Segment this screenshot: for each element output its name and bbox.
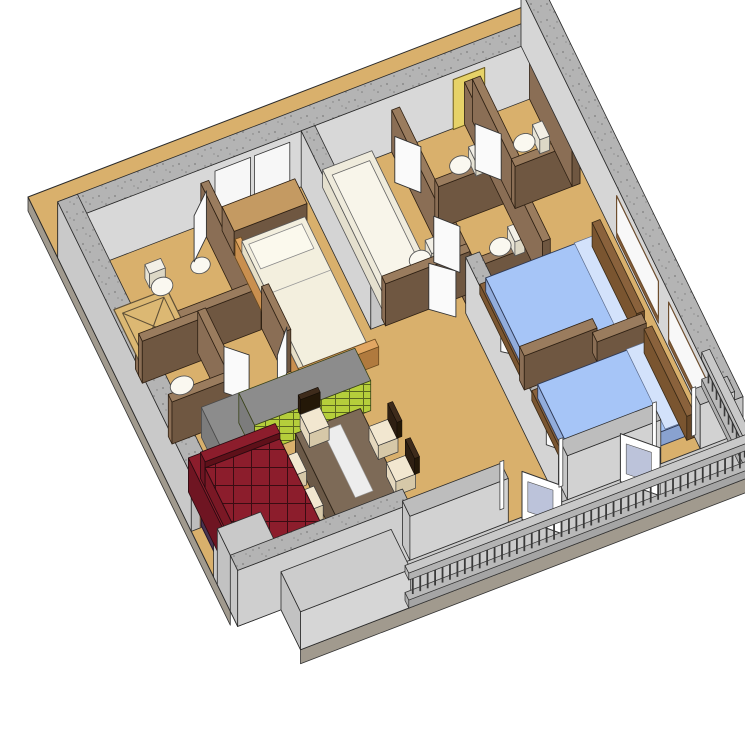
- balcony-doorpost-c: [652, 402, 656, 452]
- balcony-doorpost-a: [500, 460, 504, 510]
- door-wc2[interactable]: [434, 216, 460, 272]
- balcony-doorpost-b: [559, 438, 563, 488]
- door-wc1[interactable]: [395, 136, 421, 192]
- balcony-doorpost-d: [692, 387, 696, 437]
- door-wc3[interactable]: [475, 124, 501, 180]
- floor-plan-3d-view[interactable]: [0, 0, 745, 746]
- door-bath3[interactable]: [429, 263, 456, 317]
- viewport[interactable]: [0, 0, 745, 746]
